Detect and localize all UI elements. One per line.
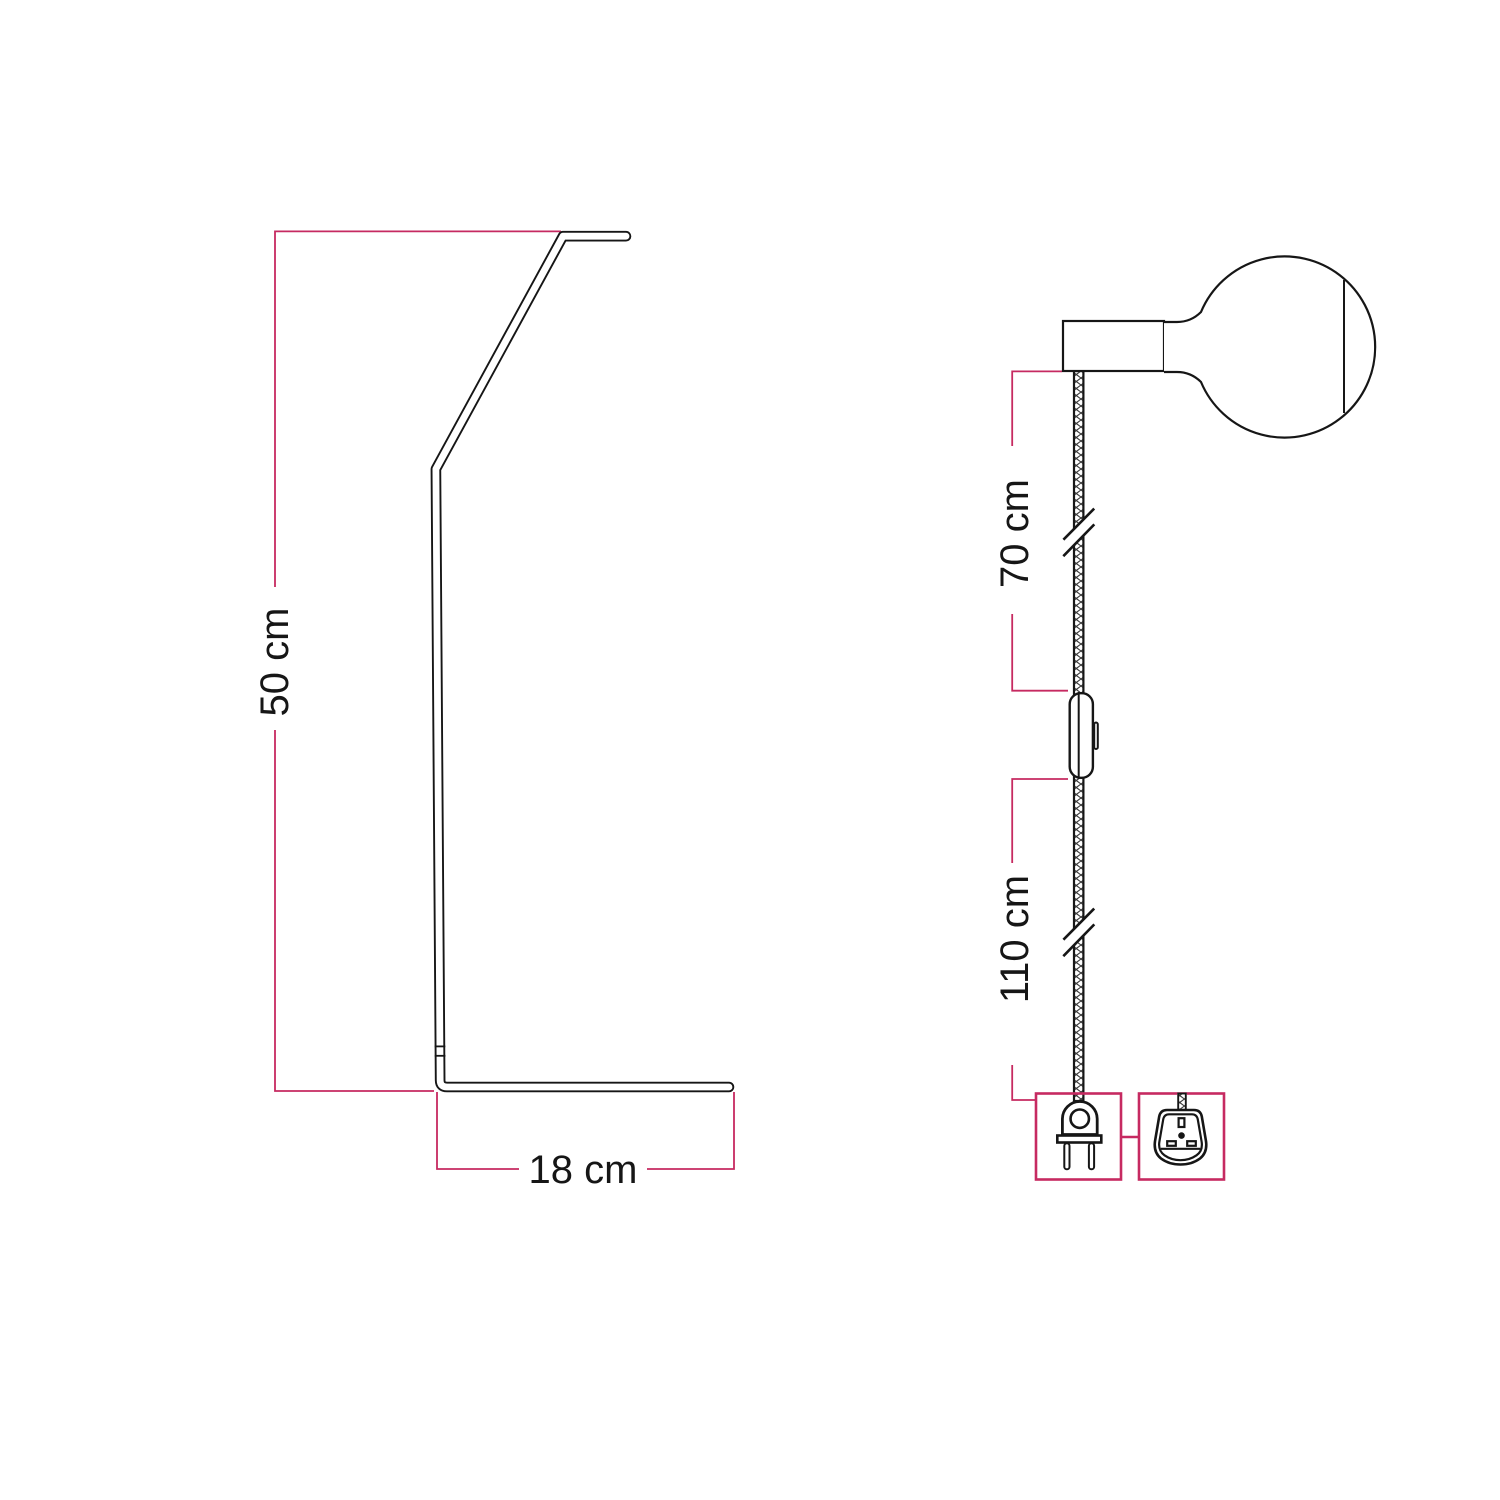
svg-text:18 cm: 18 cm — [529, 1148, 638, 1192]
svg-text:50 cm: 50 cm — [253, 608, 297, 717]
svg-text:110 cm: 110 cm — [993, 875, 1037, 1003]
svg-text:70 cm: 70 cm — [993, 479, 1037, 588]
